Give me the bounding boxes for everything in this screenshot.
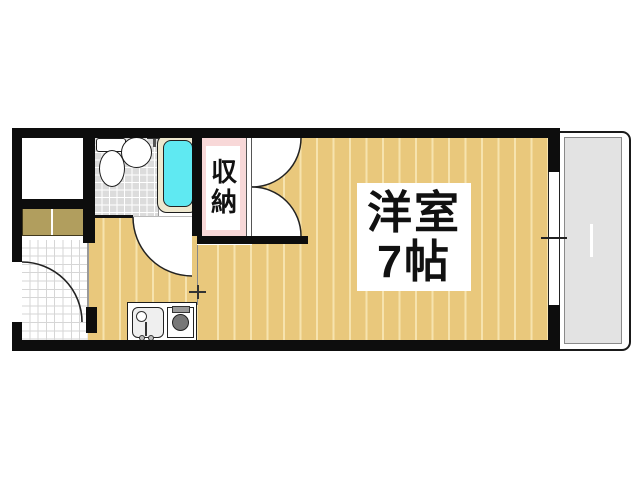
balcony-deck <box>564 137 622 344</box>
bath-faucet-stem <box>153 139 156 147</box>
wall-storage-bottom <box>12 199 95 209</box>
wall-closet-south <box>197 236 308 244</box>
wall-storage-right <box>83 128 95 243</box>
wall-left-lower <box>12 322 22 351</box>
entry-step-line <box>87 240 89 307</box>
floor-plan: 収納 洋室 7帖 <box>0 0 640 480</box>
stove-grill <box>172 306 190 313</box>
wall-right-lower <box>548 305 560 351</box>
wall-right-upper <box>548 128 560 172</box>
main-room-label: 洋室 7帖 <box>357 183 471 291</box>
kitchen-sink-drain <box>136 311 147 322</box>
shoe-cabinet-divider <box>51 209 53 235</box>
wall-left-upper <box>12 128 22 262</box>
balcony-divider-mark <box>590 224 593 257</box>
storage-room <box>22 138 83 199</box>
main-room-name: 洋室 <box>367 188 461 238</box>
wall-entry-stub <box>86 307 97 333</box>
bathroom-door-sill <box>133 216 192 217</box>
window-tick <box>541 237 567 239</box>
shoe-cabinet <box>22 208 84 236</box>
main-room-size: 7帖 <box>377 237 451 287</box>
wash-basin <box>121 137 152 168</box>
kitchen-faucet <box>145 322 147 336</box>
wall-bath-closet <box>192 138 202 236</box>
bathroom-south-wall <box>95 215 133 218</box>
stove-burner <box>172 314 189 331</box>
bathtub-water <box>163 140 193 207</box>
entrance-floor <box>22 240 88 340</box>
closet-label: 収納 <box>206 146 240 230</box>
wall-bottom <box>12 340 560 351</box>
opening-cross-mark-v <box>197 285 199 299</box>
